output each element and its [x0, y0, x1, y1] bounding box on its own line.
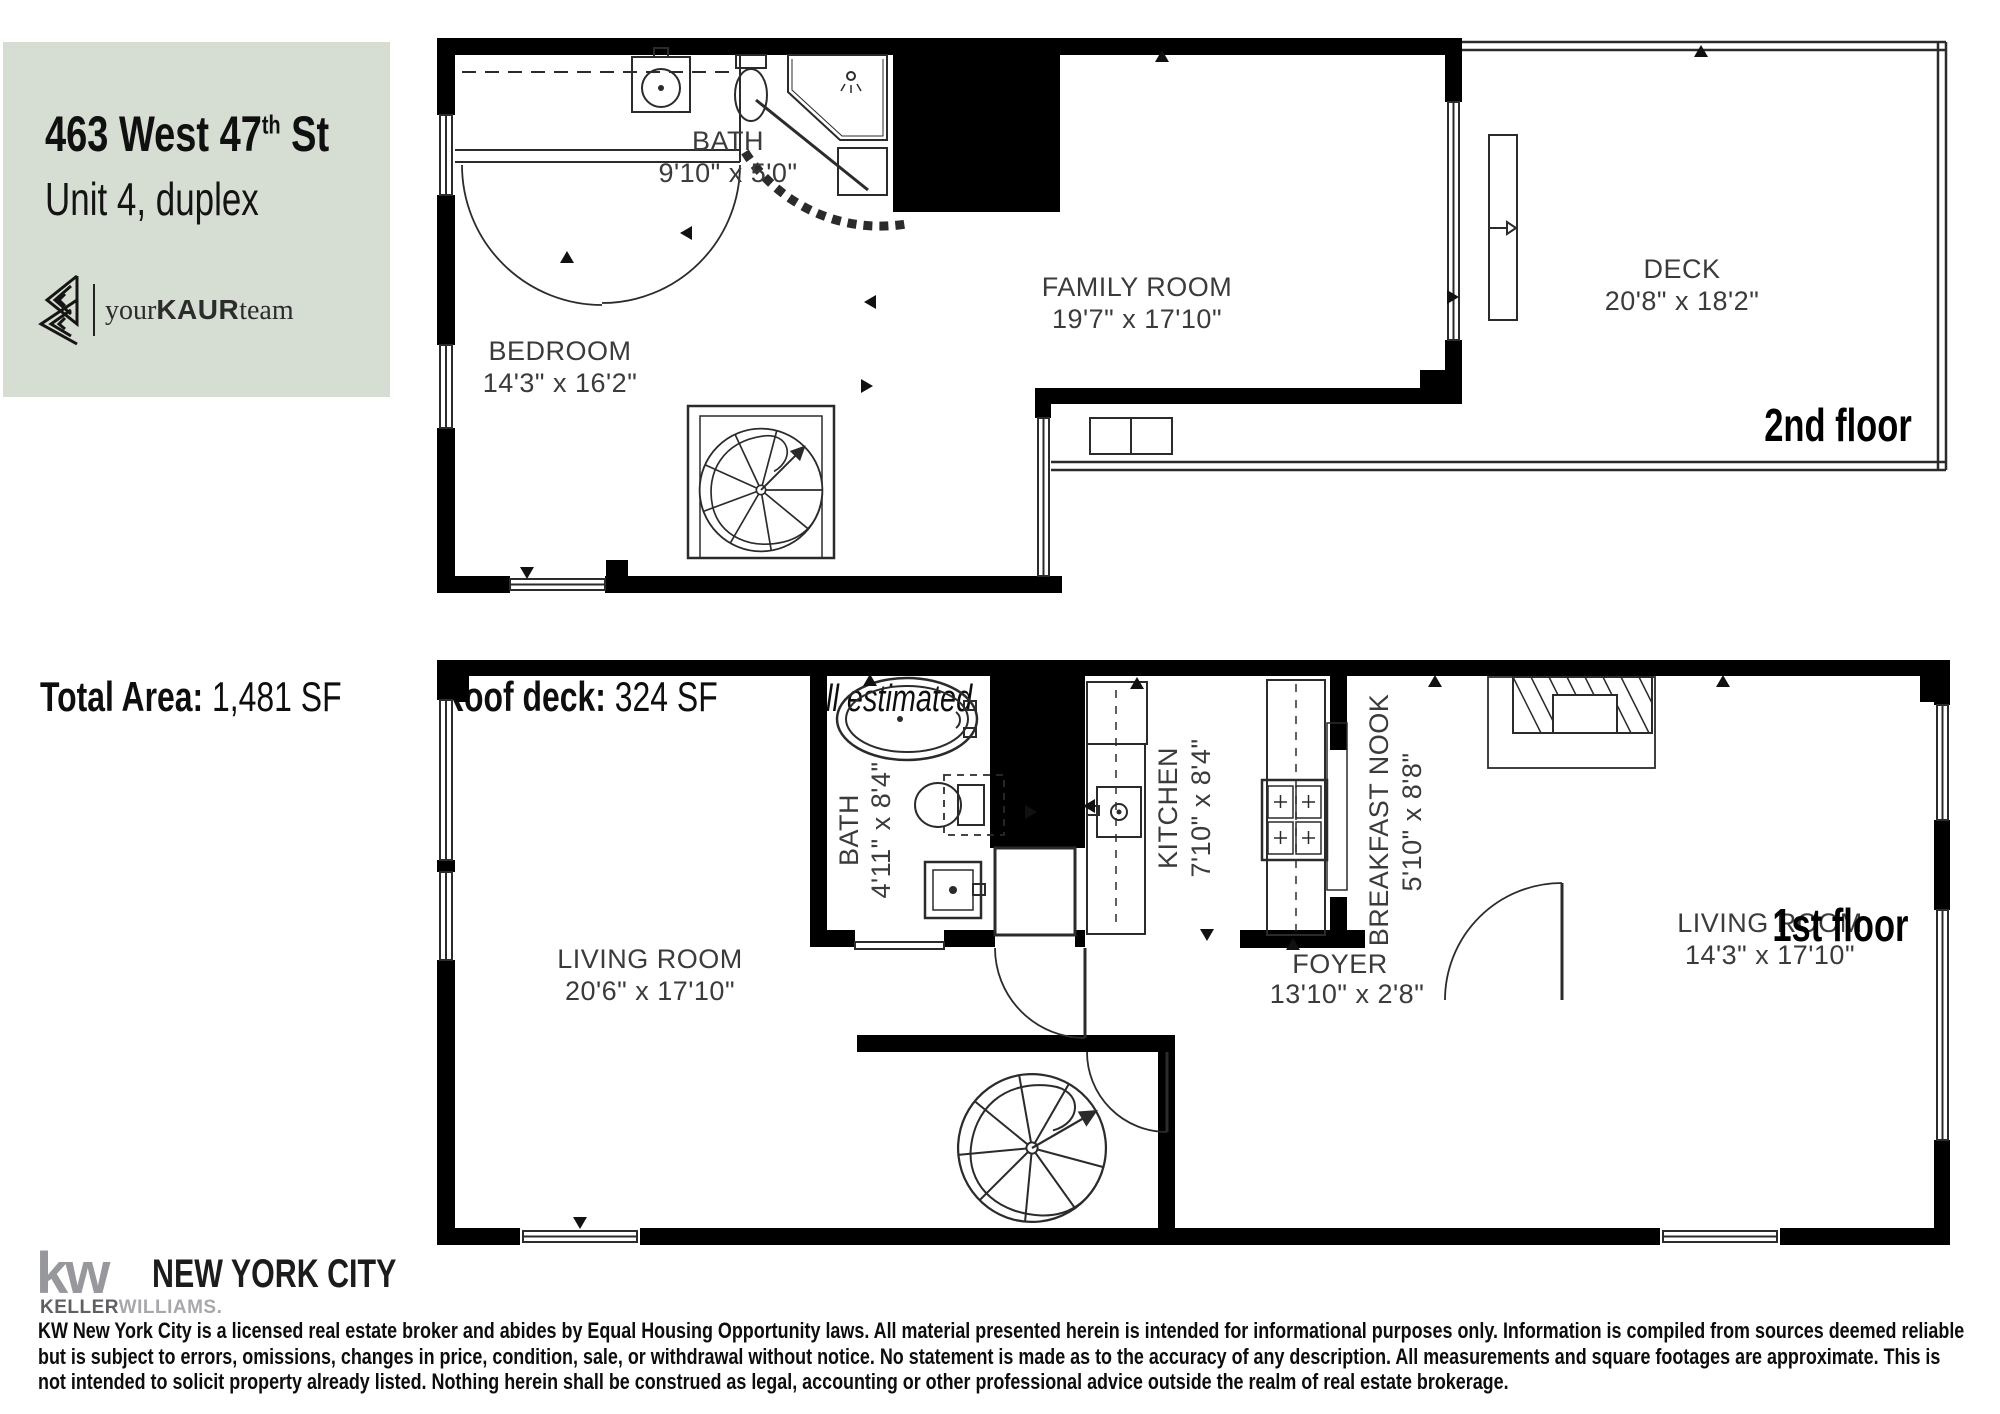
kaur-arrow-icon [33, 274, 87, 346]
floor1-roof-hatch [1488, 677, 1655, 768]
room-dims-bedroom: 14'3" x 16'2" [483, 368, 638, 398]
room-dims-kitchen: 7'10" x 8'4" [1186, 738, 1216, 877]
floor1-kitchen-fixtures [1087, 680, 1347, 935]
room-dims-breakfast-nook: 5'10" x 8'8" [1397, 752, 1427, 891]
keller-text: KELLER [40, 1297, 119, 1318]
floor1-door-markers [573, 674, 1730, 1229]
floor2-room-labels: BATH 9'10" x 5'0" BEDROOM 14'3" x 16'2" … [483, 126, 1760, 398]
room-dims-living-left: 20'6" x 17'10" [565, 976, 735, 1006]
floor1-caption: 1st floor [1772, 898, 1908, 952]
legal-disclaimer: KW New York City is a licensed real esta… [38, 1318, 1970, 1395]
kw-market-center: NEW YORK CITY [152, 1252, 396, 1297]
floor2-walls [437, 38, 1462, 593]
keller-williams-wordmark: KELLERWILLIAMS. [40, 1297, 222, 1319]
address-superscript: th [262, 109, 281, 139]
floor2-bath-fixtures [632, 48, 906, 226]
address-main: 463 West 47 [45, 106, 262, 162]
room-label-family-room: FAMILY ROOM [1042, 272, 1233, 302]
williams-text: WILLIAMS. [119, 1297, 223, 1318]
address-tail: St [281, 106, 330, 162]
logo-divider [93, 284, 95, 336]
listing-header: 463 West 47th St Unit 4, duplex yourKAUR… [3, 42, 390, 397]
logo-wordmark: yourKAURteam [105, 294, 294, 327]
floor1-spiral-stairs [941, 1057, 1122, 1238]
floor2-caption: 2nd floor [1764, 398, 1912, 452]
logo-team: team [239, 295, 293, 326]
floor1-plan: LIVING ROOM 20'6" x 17'10" BATH 4'11" x … [420, 648, 1965, 1260]
total-area-line: Total Area: 1,481 SF [40, 672, 342, 722]
total-area-value: 1,481 SF [203, 673, 341, 720]
room-dims-bath-1f: 4'11" x 8'4" [866, 761, 896, 898]
floor2-spiral-stairs [688, 406, 834, 558]
floor2-plan: BATH 9'10" x 5'0" BEDROOM 14'3" x 16'2" … [420, 28, 1965, 603]
room-dims-deck: 20'8" x 18'2" [1605, 286, 1760, 316]
room-label-living-left: LIVING ROOM [557, 944, 743, 974]
total-area-label: Total Area: [40, 673, 203, 720]
floor1-room-labels: LIVING ROOM 20'6" x 17'10" BATH 4'11" x … [557, 694, 1863, 1009]
address-title: 463 West 47th St [45, 107, 329, 162]
room-label-bath-1f: BATH [834, 794, 864, 866]
floor1-entry-stoop [995, 848, 1085, 1038]
room-label-bath-2f: BATH [692, 126, 764, 156]
room-label-kitchen: KITCHEN [1153, 747, 1183, 869]
room-label-foyer: FOYER [1292, 949, 1388, 979]
kaur-team-logo: yourKAURteam [33, 274, 294, 346]
room-label-bedroom: BEDROOM [488, 336, 631, 366]
logo-kaur: KAUR [156, 294, 239, 325]
room-dims-family-room: 19'7" x 17'10" [1052, 304, 1222, 334]
logo-your: your [105, 295, 156, 326]
room-label-breakfast-nook: BREAKFAST NOOK [1364, 694, 1394, 947]
room-dims-foyer: 13'10" x 2'8" [1270, 979, 1425, 1009]
room-label-deck: DECK [1643, 254, 1720, 284]
unit-subtitle: Unit 4, duplex [45, 172, 259, 226]
room-dims-bath-2f: 9'10" x 5'0" [658, 158, 797, 188]
